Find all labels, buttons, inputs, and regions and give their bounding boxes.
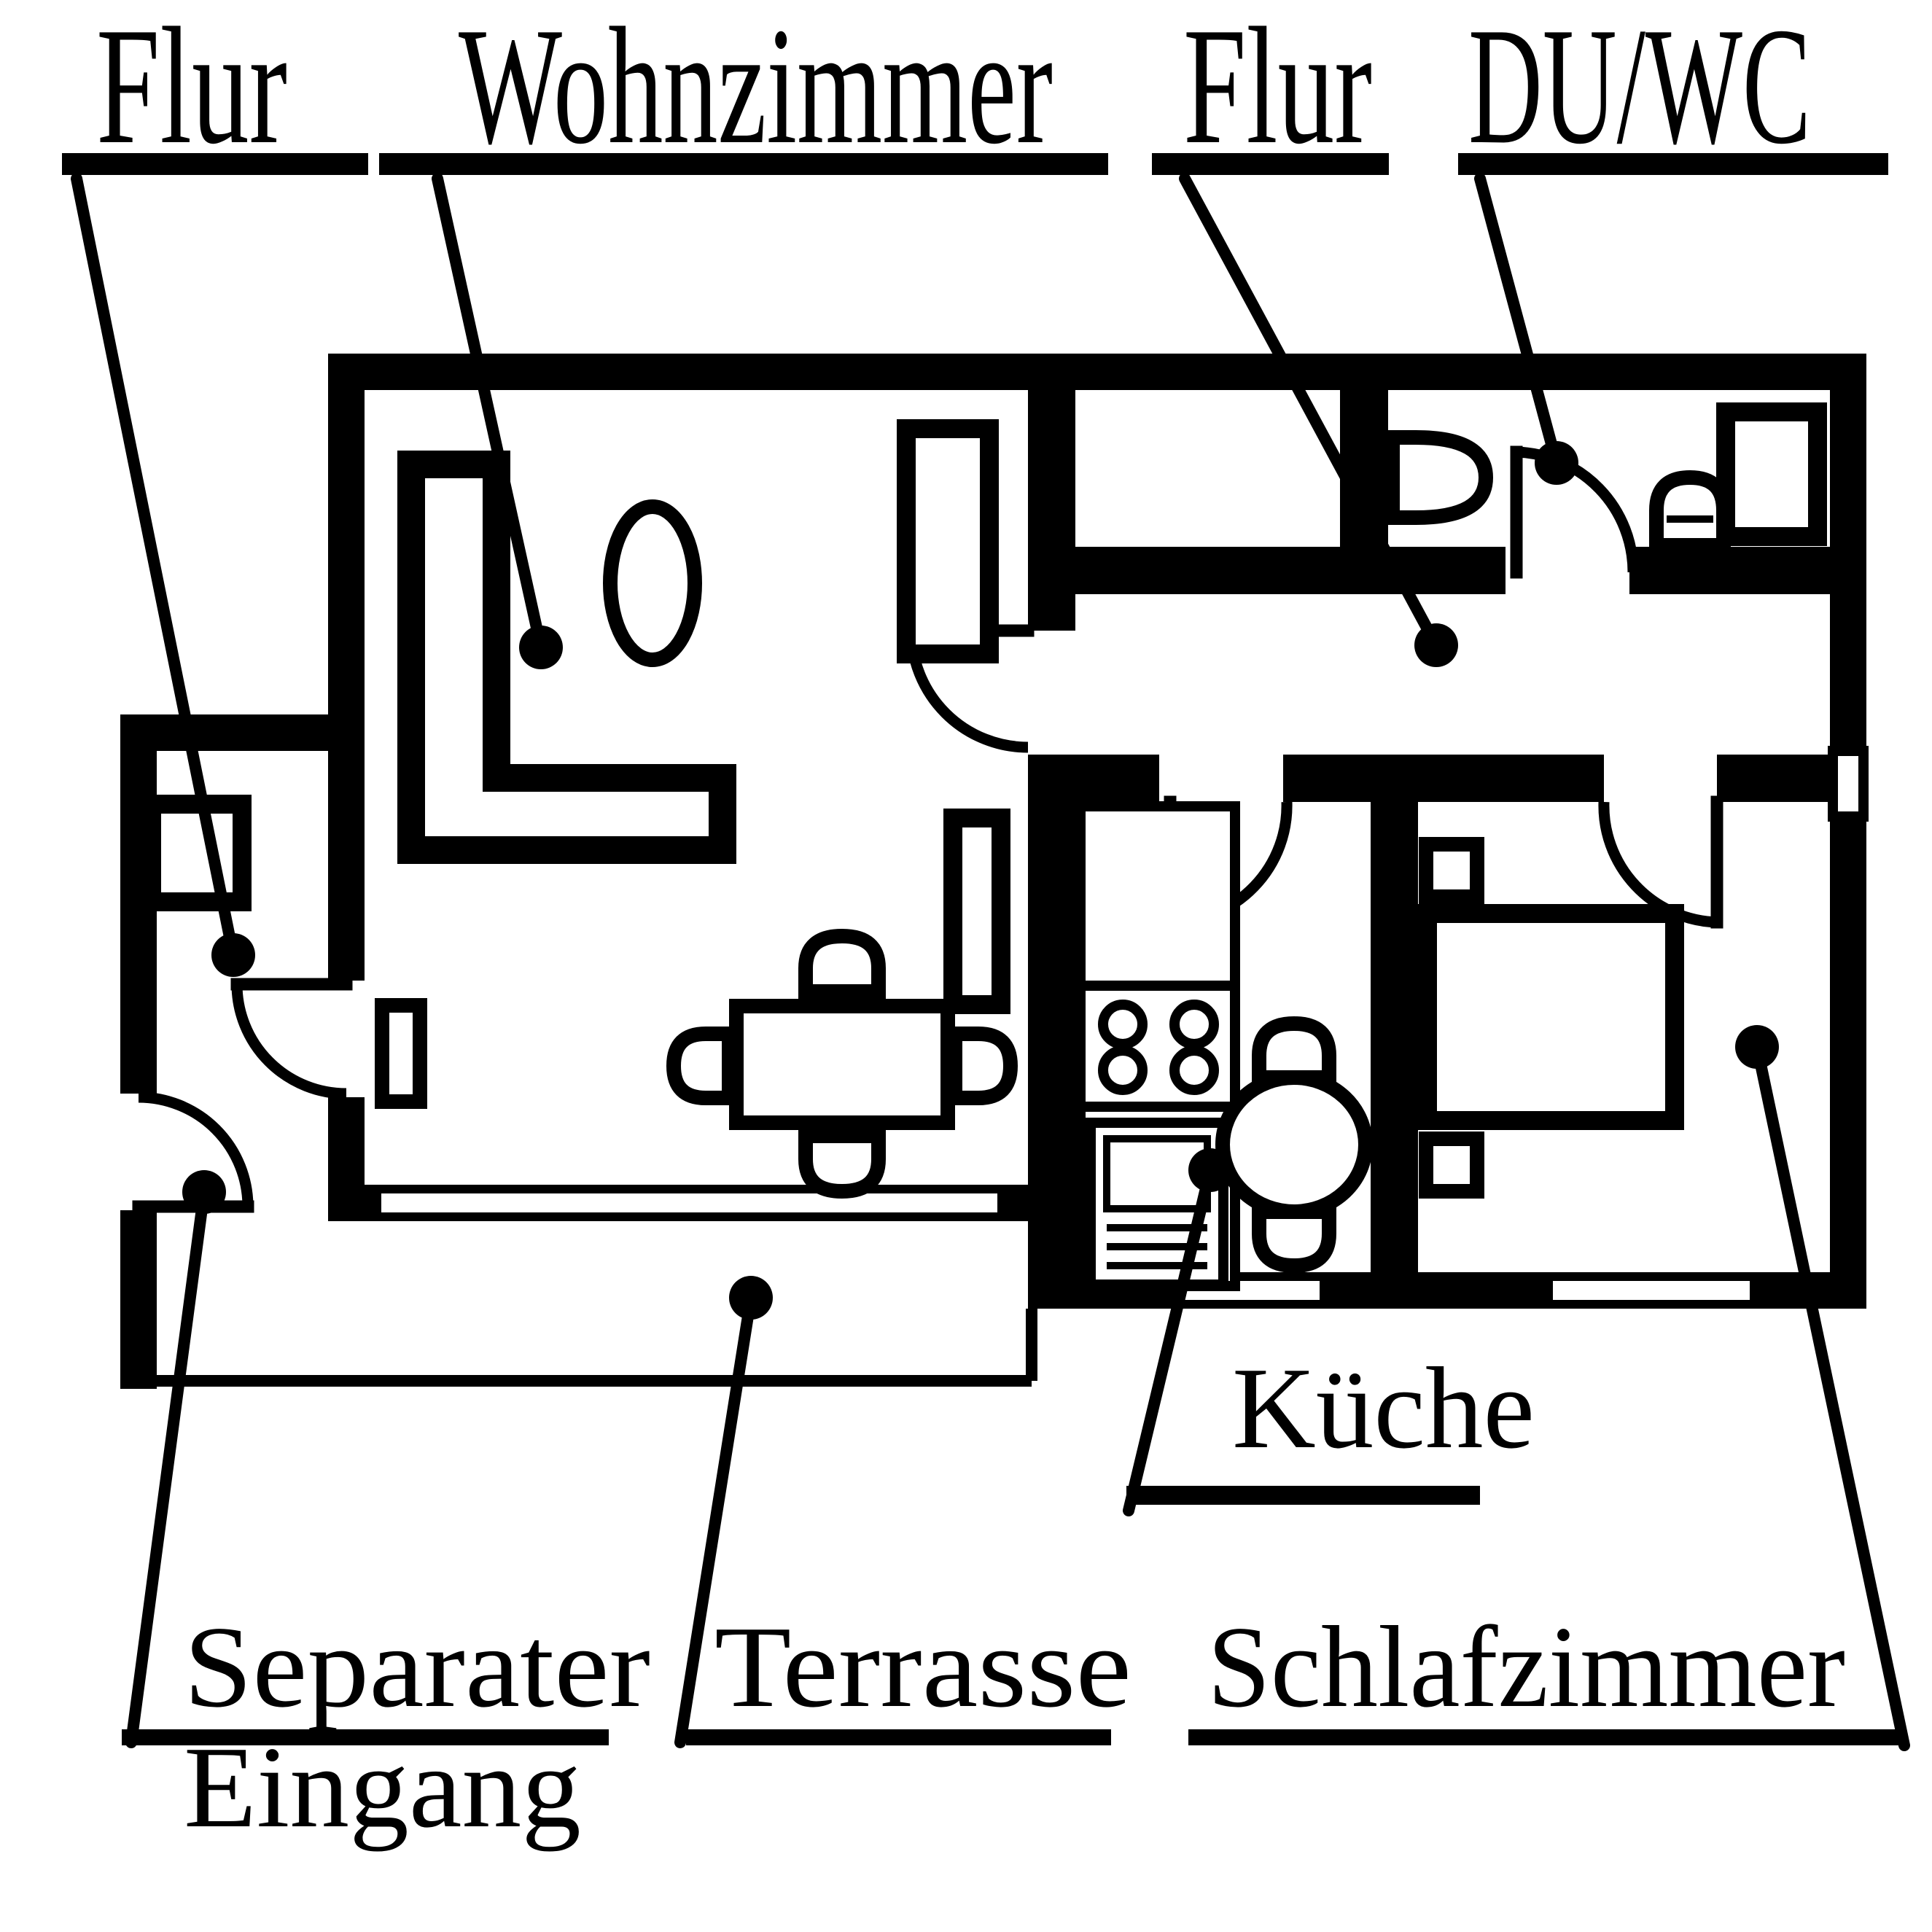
terrace-outline	[120, 1309, 1032, 1381]
burner-icon	[1103, 1051, 1142, 1090]
bedroom-window	[1553, 1281, 1750, 1300]
wall-livingroom-hall	[1028, 390, 1075, 631]
cabinet-icon	[953, 818, 1001, 1005]
burner-icon	[1175, 1005, 1214, 1044]
room-du-wc	[1392, 412, 1818, 545]
burner-icon	[1175, 1051, 1214, 1090]
kitchen-table-icon	[1223, 1078, 1366, 1212]
l-sofa-icon	[397, 451, 736, 864]
wall-hall-kitchen-b	[1283, 755, 1604, 802]
dining-chair-top-icon	[806, 936, 879, 992]
underline-terrasse	[686, 1729, 1111, 1745]
wall-bath-bottom-right	[1629, 547, 1830, 594]
wall-kitchen-west	[1028, 802, 1075, 1272]
dining-chair-bottom-icon	[806, 1136, 879, 1191]
label-separater: Separater	[184, 1602, 650, 1732]
leader-du-wc	[1480, 179, 1557, 463]
dot-flur-left	[211, 933, 255, 977]
room-kueche	[1080, 806, 1366, 1286]
underline-schlafzimmer	[1188, 1729, 1903, 1745]
wall-annex-left-lower	[120, 1210, 157, 1389]
wall-right-lower	[1830, 820, 1866, 1309]
dining-chair-left-icon	[674, 1034, 729, 1098]
label-wohnzimmer: Wohnzimmer	[459, 0, 1053, 179]
wall-kitchen-bedroom	[1371, 802, 1418, 1272]
label-terrasse: Terrasse	[714, 1602, 1131, 1732]
underline-flur-left	[62, 153, 368, 175]
shower-icon	[1726, 412, 1818, 537]
wall-annex-top	[120, 714, 365, 751]
label-flur-left: Flur	[96, 0, 287, 179]
dot-separater-eingang	[182, 1170, 226, 1214]
wall-top	[328, 354, 1866, 390]
bed-icon	[1427, 914, 1675, 1121]
kitchen-chair-bottom-icon	[1259, 1212, 1329, 1266]
washbasin-icon	[1392, 437, 1486, 518]
wall-hall-bedroom	[1717, 755, 1830, 802]
nightstand-bottom-icon	[1426, 1139, 1477, 1191]
underline-kueche	[1126, 1486, 1480, 1505]
toilet-icon	[1656, 478, 1723, 545]
floor-plan: Flur Wohnzimmer Flur DU/WC Küche Separat…	[0, 0, 1932, 1932]
dot-kueche	[1188, 1148, 1232, 1192]
room-wohnzimmer	[382, 429, 1010, 1191]
nightstand-top-icon	[1426, 844, 1477, 897]
label-kueche: Küche	[1232, 1343, 1535, 1473]
dining-table-icon	[736, 1006, 948, 1123]
hall-cabinet-icon	[152, 804, 242, 902]
burner-icon	[1103, 1005, 1142, 1044]
wall-right-upper	[1830, 354, 1866, 747]
label-schlafzimmer: Schlafzimmer	[1207, 1602, 1845, 1732]
underline-du-wc	[1458, 153, 1888, 175]
room-schlafzimmer	[1426, 844, 1675, 1191]
dot-terrasse	[729, 1276, 773, 1320]
dot-wohnzimmer	[519, 626, 563, 669]
dot-schlafzimmer	[1735, 1025, 1779, 1069]
wall-left-lower	[328, 1097, 365, 1221]
label-du-wc: DU/WC	[1468, 0, 1811, 179]
coffee-table-icon	[610, 507, 695, 660]
label-eingang: Eingang	[184, 1722, 581, 1852]
dot-flur-right	[1414, 623, 1458, 667]
underline-flur-right	[1152, 153, 1389, 175]
kitchen-chair-top-icon	[1259, 1024, 1329, 1078]
side-table-icon	[382, 1005, 420, 1102]
wall-left-upper	[328, 354, 365, 981]
label-flur-right: Flur	[1183, 0, 1372, 179]
room-flur-annex	[152, 804, 242, 902]
wall-bath-bottom-left	[1028, 547, 1506, 594]
wall-hall-kitchen-a	[1028, 755, 1159, 802]
wardrobe-icon	[906, 429, 989, 654]
sliding-terrace-door	[381, 1193, 997, 1212]
hall-window	[1833, 751, 1863, 817]
annex-livingroom-door-arc	[237, 984, 346, 1094]
dot-du-wc	[1535, 441, 1578, 485]
underline-wohnzimmer	[379, 153, 1108, 175]
stove-icon	[1080, 986, 1235, 1107]
dining-chair-right-icon	[955, 1034, 1010, 1098]
